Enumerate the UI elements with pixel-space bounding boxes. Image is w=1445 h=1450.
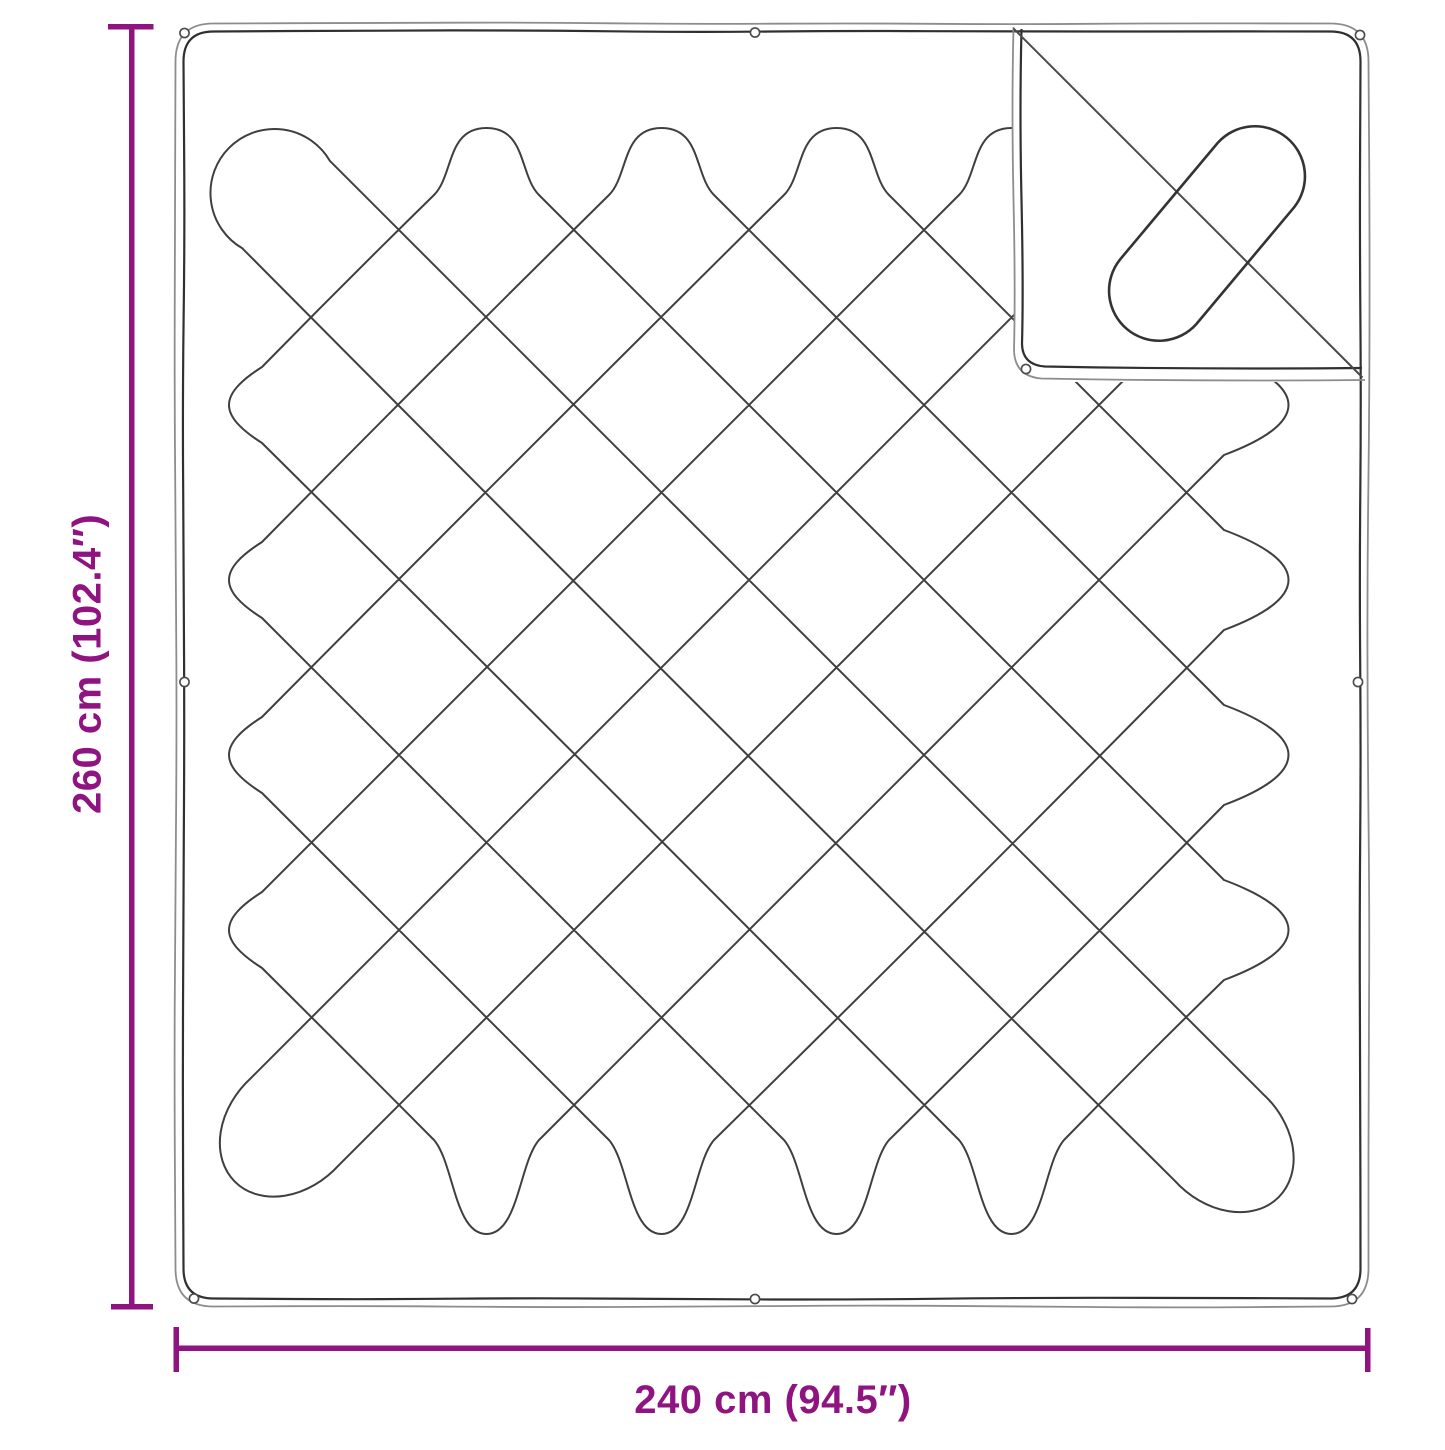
svg-text:240 cm (94.5″): 240 cm (94.5″) — [634, 1378, 911, 1422]
svg-text:260 cm (102.4″): 260 cm (102.4″) — [66, 514, 110, 814]
